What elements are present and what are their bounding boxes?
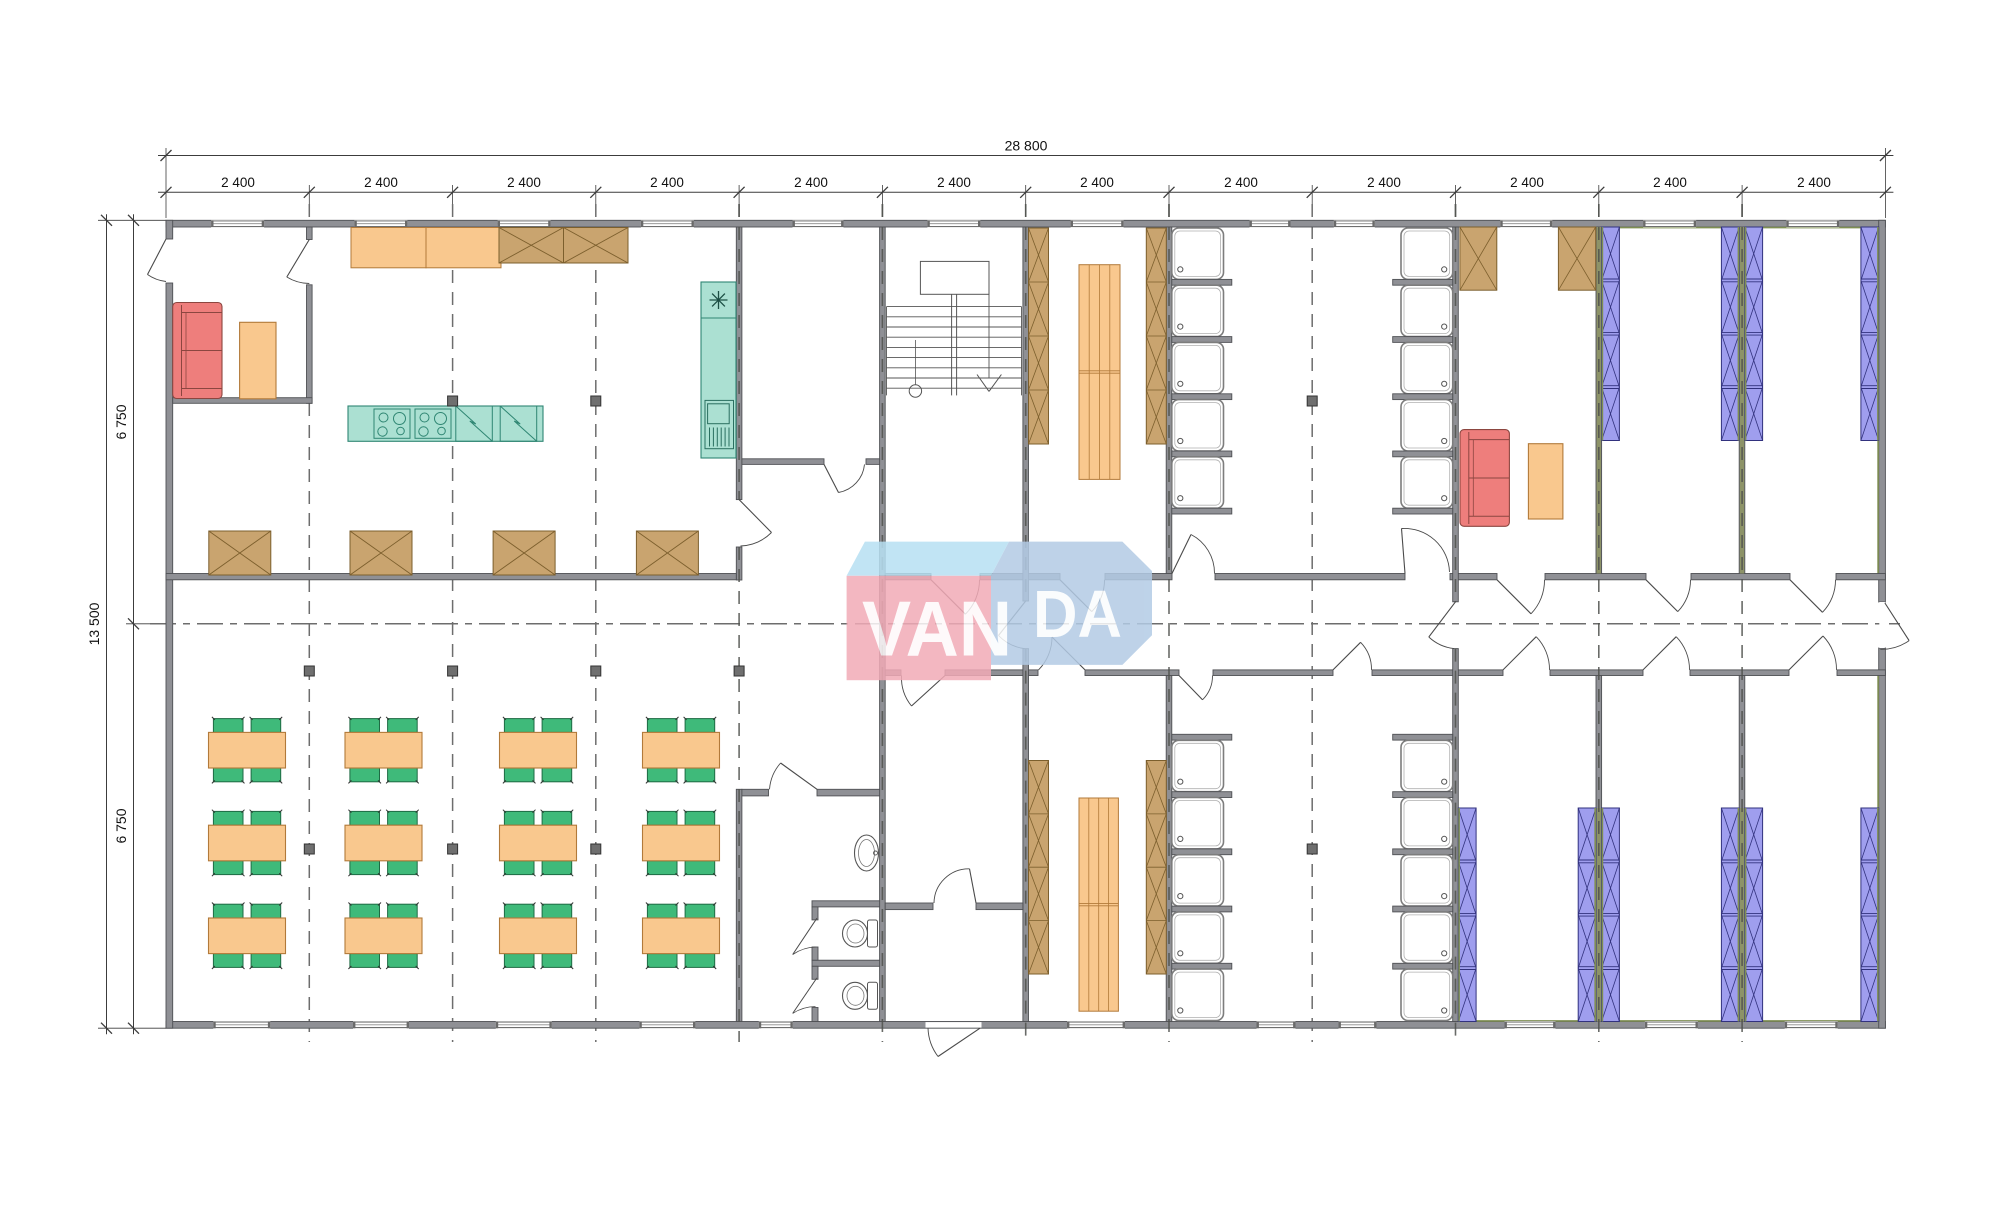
svg-text:2 400: 2 400 (1797, 175, 1831, 190)
svg-text:DA: DA (1033, 577, 1122, 652)
svg-text:VAN: VAN (862, 585, 1012, 673)
svg-text:2 400: 2 400 (794, 175, 828, 190)
svg-text:2 400: 2 400 (937, 175, 971, 190)
svg-text:2 400: 2 400 (1510, 175, 1544, 190)
svg-text:2 400: 2 400 (1367, 175, 1401, 190)
svg-text:2 400: 2 400 (1080, 175, 1114, 190)
svg-text:6 750: 6 750 (113, 808, 129, 843)
svg-text:2 400: 2 400 (1653, 175, 1687, 190)
svg-text:28 800: 28 800 (1005, 138, 1048, 154)
svg-text:6 750: 6 750 (113, 404, 129, 439)
svg-text:2 400: 2 400 (507, 175, 541, 190)
svg-text:13 500: 13 500 (86, 602, 102, 645)
svg-text:2 400: 2 400 (650, 175, 684, 190)
svg-text:2 400: 2 400 (364, 175, 398, 190)
svg-text:2 400: 2 400 (1224, 175, 1258, 190)
svg-text:2 400: 2 400 (221, 175, 255, 190)
